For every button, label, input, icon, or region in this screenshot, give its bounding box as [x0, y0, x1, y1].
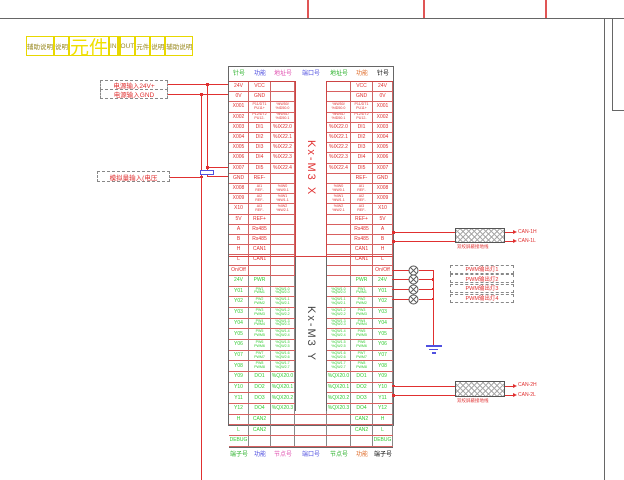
lamp-icon — [408, 294, 419, 305]
pin-address-right: %IX22.0 — [327, 123, 351, 132]
pin-function-right: PW3 PWM3 — [351, 308, 373, 318]
pwm-output-labels: PWM输出灯1PWM输出灯2PWM输出灯3PWM输出灯4 — [450, 265, 514, 304]
pin-function-left: PW5 PWM5 — [249, 329, 271, 339]
pin-function-right: DO3 — [351, 393, 373, 403]
pin-number-left: X004 — [229, 133, 249, 142]
junction-dot — [206, 83, 209, 86]
pin-number-left: X005 — [229, 143, 249, 152]
pin-number-right: X002 — [373, 113, 393, 122]
header-cell: 功能 — [351, 67, 373, 81]
pin-number-left: X10 — [229, 204, 249, 213]
pin-address-right — [327, 415, 351, 425]
label-pwm-output: PWM输出灯4 — [450, 294, 514, 303]
pin-function-left: P12/DT2 PU12- — [249, 113, 271, 122]
pin-function-left: CAN2 — [249, 415, 271, 425]
pin-address-left: %IW0 %IW0.1 — [271, 184, 295, 193]
pin-address-left: %IX22.3 — [271, 153, 295, 162]
pin-address-right: %QX20.2 — [327, 393, 351, 403]
module-body-x: Kx-M3 X — [295, 81, 327, 256]
pin-number-left: B — [229, 235, 249, 244]
junction-dot — [392, 231, 395, 234]
footer-cell: 节点号 — [271, 448, 295, 462]
pin-function-right — [351, 266, 373, 275]
legend-cell: OUT — [120, 36, 136, 56]
pin-function-left: PW8 PWM8 — [249, 361, 271, 371]
pin-address-right — [327, 425, 351, 435]
pin-function-right: REF- — [351, 174, 373, 183]
pin-function-right: GND — [351, 92, 373, 101]
pin-address-left: %IW1 %IW1.1 — [271, 194, 295, 203]
pin-function-right: Rs485 — [351, 235, 373, 244]
pin-number-left: 24V — [229, 276, 249, 286]
pin-function-left: AI1 REF- — [249, 184, 271, 193]
wire-pwm1-out — [419, 270, 433, 271]
wire-pwm2 — [392, 279, 409, 280]
pin-number-left: Y07 — [229, 351, 249, 361]
y-pin-row: H CAN2 CAN2 H — [229, 415, 393, 426]
label-can2-l: CAN-2L — [518, 393, 536, 398]
wire-can2-h — [392, 386, 455, 387]
connector-bottom-header: 端子号功能节点号端口号节点号功能端子号 — [229, 447, 393, 462]
pin-number-left: L — [229, 425, 249, 435]
pin-function-left: Rs485 — [249, 235, 271, 244]
pin-address-right — [327, 225, 351, 234]
pin-address-right: %IW2 %IW2.1 — [327, 204, 351, 213]
ground-icon — [426, 345, 442, 347]
legend-cell: IN — [109, 36, 118, 56]
pin-address-left: %IX22.0 — [271, 123, 295, 132]
module-y-name: Kx-M3 Y — [305, 306, 317, 362]
pin-function-right: DI2 — [351, 133, 373, 142]
pin-function-left: PW7 PWM7 — [249, 351, 271, 361]
label-power-gnd: 电源输入GND — [100, 89, 168, 99]
pin-number-right: X007 — [373, 164, 393, 173]
pin-number-left: Y10 — [229, 383, 249, 393]
ground-icon — [432, 352, 436, 354]
pin-number-right: 5V — [373, 215, 393, 224]
pin-number-right: On/Off — [373, 266, 393, 275]
legend-cell: 说明 — [54, 36, 69, 56]
pin-address-right — [327, 235, 351, 244]
wire-can1-l — [392, 241, 455, 242]
pin-number-left: X003 — [229, 123, 249, 132]
pin-address-right: %QW1.6 %QW2.6 — [327, 351, 351, 361]
header-cell: 地址号 — [271, 67, 295, 81]
pin-number-right: Y09 — [373, 372, 393, 382]
pin-address-right — [327, 436, 351, 446]
pin-address-left: %QW1.4 %QW2.4 — [271, 329, 295, 339]
pin-number-right: Y08 — [373, 361, 393, 371]
pin-number-right: X008 — [373, 184, 393, 193]
pin-address-left — [271, 436, 295, 446]
pin-number-right: 24V — [373, 82, 393, 91]
footer-cell: 功能 — [351, 448, 373, 462]
pin-function-right: DI3 — [351, 143, 373, 152]
pin-number-left: A — [229, 225, 249, 234]
pin-address-right — [327, 215, 351, 224]
pin-number-left: X008 — [229, 184, 249, 193]
pin-function-right: DO1 — [351, 372, 373, 382]
pin-number-right: Y02 — [373, 297, 393, 307]
sheet-tick — [307, 0, 309, 18]
pin-address-right — [327, 276, 351, 286]
sheet-frame-line — [612, 110, 624, 111]
pin-function-right: AI3 REF- — [351, 204, 373, 213]
pin-number-right: H — [373, 415, 393, 425]
pin-function-right: AI1 REF- — [351, 184, 373, 193]
sheet-top-border — [0, 18, 624, 19]
pin-address-left: %IX22.4 — [271, 164, 295, 173]
pin-number-left: X002 — [229, 113, 249, 122]
arrowhead-icon — [513, 393, 517, 397]
port-cell — [295, 425, 327, 435]
pin-function-left: GND — [249, 92, 271, 101]
pin-number-right: A — [373, 225, 393, 234]
pin-address-right: %QW1.2 %QW2.2 — [327, 308, 351, 318]
pin-function-right: REF+ — [351, 215, 373, 224]
pin-function-left: Rs485 — [249, 225, 271, 234]
pin-number-right: 0V — [373, 92, 393, 101]
pin-number-left: X009 — [229, 194, 249, 203]
pin-function-left: PW1 PWM1 — [249, 287, 271, 297]
pin-number-right: DEBUG — [373, 436, 393, 446]
pin-address-right — [327, 82, 351, 91]
pin-number-left: Y05 — [229, 329, 249, 339]
pin-number-right: X001 — [373, 102, 393, 111]
pin-address-right: %QW1.0 %QW2.0 — [327, 287, 351, 297]
pin-number-left: 24V — [229, 82, 249, 91]
shielded-cable-symbol-can2 — [455, 381, 505, 397]
pin-number-left: 5V — [229, 215, 249, 224]
pin-number-left: Y02 — [229, 297, 249, 307]
pin-number-right: GND — [373, 174, 393, 183]
pin-function-right: CAN2 — [351, 415, 373, 425]
pin-function-left — [249, 266, 271, 275]
pin-address-left — [271, 425, 295, 435]
pin-function-left: REF- — [249, 174, 271, 183]
pin-number-left: Y04 — [229, 319, 249, 329]
pin-number-right: X003 — [373, 123, 393, 132]
pin-address-left: %IX22.2 — [271, 143, 295, 152]
pin-address-right: %QX20.0 — [327, 372, 351, 382]
legend-strip: 辅助说明说明元件INOUT元件说明辅助说明 — [26, 36, 193, 58]
pin-function-right: CAN1 — [351, 245, 373, 254]
label-pwm-output: PWM输出灯3 — [450, 284, 514, 293]
pin-address-right — [327, 92, 351, 101]
pin-address-right: %IW0 %IW0.1 — [327, 184, 351, 193]
pin-address-left — [271, 415, 295, 425]
port-cell — [295, 436, 327, 446]
pin-number-right: Y01 — [373, 287, 393, 297]
label-can2-h: CAN-2H — [518, 383, 537, 388]
io-connector-table: 针号功能地址号端口号地址号功能针号 24V VCC VCC 24V 0V GND — [228, 66, 394, 426]
pin-number-left: Y09 — [229, 372, 249, 382]
pin-address-right: %QX20.1 — [327, 383, 351, 393]
pin-function-right: PW6 PWM6 — [351, 340, 373, 350]
pin-number-left: On/Off — [229, 266, 249, 275]
header-cell: 针号 — [373, 67, 393, 81]
pin-function-right: PW4 PWM4 — [351, 319, 373, 329]
pin-address-right: %QW1.1 %QW2.1 — [327, 297, 351, 307]
wire-pwm4 — [392, 299, 409, 300]
pin-address-left: %QW1.3 %QW2.3 — [271, 319, 295, 329]
label-pwm-output: PWM输出灯1 — [450, 265, 514, 274]
pin-address-right: %QX20.3 — [327, 404, 351, 414]
pin-address-left: %QW1.6 %QW2.6 — [271, 351, 295, 361]
junction-dot — [206, 166, 209, 169]
pin-address-right: %IX22.1 — [327, 133, 351, 142]
wire-pwm3 — [392, 289, 409, 290]
arrowhead-icon — [513, 230, 517, 234]
pin-address-left — [271, 92, 295, 101]
pin-function-right: PW1 PWM1 — [351, 287, 373, 297]
pin-number-right: X004 — [373, 133, 393, 142]
pin-address-left — [271, 82, 295, 91]
pin-number-left: Y11 — [229, 393, 249, 403]
pin-number-left: X006 — [229, 153, 249, 162]
pin-address-left: %QW1.5 %QW2.5 — [271, 340, 295, 350]
pin-number-right: Y11 — [373, 393, 393, 403]
pin-function-right: PW2 PWM2 — [351, 297, 373, 307]
pin-function-left: DI3 — [249, 143, 271, 152]
junction-dot — [432, 298, 435, 301]
wire-can1-h — [392, 232, 455, 233]
pin-function-left: P11/DT1 PU11+ — [249, 102, 271, 111]
pin-number-left: H — [229, 415, 249, 425]
pin-number-left: Y08 — [229, 361, 249, 371]
pin-function-left: DI4 — [249, 153, 271, 162]
pin-address-right: %IW51/ %ID50.1 — [327, 113, 351, 122]
block-divider-line — [229, 256, 393, 257]
pin-function-right: AI2 REF- — [351, 194, 373, 203]
pin-number-right: Y10 — [373, 383, 393, 393]
junction-dot — [392, 394, 395, 397]
pin-function-left — [249, 436, 271, 446]
junction-dot — [200, 176, 203, 179]
pin-address-left: %QX20.1 — [271, 383, 295, 393]
wire-ai1 — [207, 176, 228, 177]
footer-cell: 端子号 — [229, 448, 249, 462]
module-x-name: Kx-M3 X — [305, 140, 317, 196]
pin-function-left: PW4 PWM4 — [249, 319, 271, 329]
label-can1-l: CAN-1L — [518, 239, 536, 244]
pin-number-left: Y01 — [229, 287, 249, 297]
pin-function-right: DO2 — [351, 383, 373, 393]
pin-number-right: H — [373, 245, 393, 254]
legend-cell: 辅助说明 — [165, 36, 193, 56]
pin-address-right — [327, 266, 351, 275]
pin-function-left: DI5 — [249, 164, 271, 173]
pin-function-left: CAN2 — [249, 425, 271, 435]
pin-function-right: PW5 PWM5 — [351, 329, 373, 339]
port-cell — [295, 415, 327, 425]
pin-number-right: L — [373, 425, 393, 435]
pin-address-left: %QW1.1 %QW2.1 — [271, 297, 295, 307]
junction-dot — [432, 288, 435, 291]
pin-number-left: Y12 — [229, 404, 249, 414]
pin-address-left: %IW50/ %ID50.0 — [271, 102, 295, 111]
pin-address-right: %IX22.2 — [327, 143, 351, 152]
wire-gnd-vertical — [201, 94, 202, 480]
pin-address-right: %IW1 %IW1.1 — [327, 194, 351, 203]
pin-address-right: %IX22.4 — [327, 164, 351, 173]
sheet-tick — [423, 0, 425, 18]
pin-number-right: X10 — [373, 204, 393, 213]
pin-address-right — [327, 174, 351, 183]
pin-number-left: DEBUG — [229, 436, 249, 446]
pin-number-left: Y03 — [229, 308, 249, 318]
schematic-sheet: 辅助说明说明元件INOUT元件说明辅助说明 针号功能地址号端口号地址号功能针号 … — [0, 0, 624, 480]
pin-function-left: REF+ — [249, 215, 271, 224]
header-cell: 功能 — [249, 67, 271, 81]
pin-number-right: Y04 — [373, 319, 393, 329]
pin-function-left: DI1 — [249, 123, 271, 132]
junction-dot — [392, 240, 395, 243]
wire-ref-minus — [207, 167, 228, 168]
module-body-y: Kx-M3 Y — [295, 256, 327, 411]
pin-address-right: %QW1.4 %QW2.4 — [327, 329, 351, 339]
pin-number-left: GND — [229, 174, 249, 183]
pin-function-left: CAN1 — [249, 245, 271, 254]
pin-function-left: DO3 — [249, 393, 271, 403]
junction-dot — [392, 385, 395, 388]
footer-cell: 端子号 — [373, 448, 393, 462]
pin-function-right: DI4 — [351, 153, 373, 162]
pin-address-right: %IX22.3 — [327, 153, 351, 162]
pin-number-right: X009 — [373, 194, 393, 203]
footer-cell: 端口号 — [295, 448, 327, 462]
pin-number-left: X007 — [229, 164, 249, 173]
pin-address-left: %QW1.0 %QW2.0 — [271, 287, 295, 297]
pin-number-right: Y05 — [373, 329, 393, 339]
pin-function-left: DO1 — [249, 372, 271, 382]
header-cell: 端口号 — [295, 67, 327, 81]
pin-function-left: VCC — [249, 82, 271, 91]
legend-cell: 说明 — [150, 36, 165, 56]
pin-address-right: %QW1.7 %QW2.7 — [327, 361, 351, 371]
pin-address-left — [271, 225, 295, 234]
wire-lamp-common — [433, 270, 434, 345]
sheet-frame-line — [612, 18, 613, 110]
pin-function-right: CAN2 — [351, 425, 373, 435]
pin-address-left: %IX22.1 — [271, 133, 295, 142]
shielded-cable-symbol-can1 — [455, 228, 505, 243]
pin-address-left: %IW51/ %ID50.1 — [271, 113, 295, 122]
pin-address-left — [271, 276, 295, 286]
pin-address-right: %QW1.3 %QW2.3 — [327, 319, 351, 329]
label-pwm-output: PWM输出灯2 — [450, 274, 514, 283]
header-cell: 针号 — [229, 67, 249, 81]
pin-function-left: DI2 — [249, 133, 271, 142]
header-cell: 地址号 — [327, 67, 351, 81]
pin-function-left: AI3 REF- — [249, 204, 271, 213]
pin-function-right: DO4 — [351, 404, 373, 414]
pin-address-left: %IW2 %IW2.1 — [271, 204, 295, 213]
wire-pwm1 — [392, 270, 409, 271]
pin-number-left: Y06 — [229, 340, 249, 350]
pin-function-right: PW8 PWM8 — [351, 361, 373, 371]
pin-address-left — [271, 235, 295, 244]
pin-address-right: %IW50/ %ID50.0 — [327, 102, 351, 111]
pin-number-right: X006 — [373, 153, 393, 162]
pin-address-left: %QX20.0 — [271, 372, 295, 382]
pin-number-left: 0V — [229, 92, 249, 101]
junction-dot — [200, 93, 203, 96]
label-can1-h: CAN-1H — [518, 230, 537, 235]
wire-gnd — [168, 94, 228, 95]
pin-address-left: %QX20.3 — [271, 404, 295, 414]
pin-function-right: VCC — [351, 82, 373, 91]
pin-address-left — [271, 266, 295, 275]
y-pin-row: L CAN2 CAN2 L — [229, 425, 393, 436]
caption-can1-cable: 双绞屏蔽接地线 — [457, 245, 489, 250]
pin-number-right: Y06 — [373, 340, 393, 350]
pin-number-right: B — [373, 235, 393, 244]
pin-function-left: DO4 — [249, 404, 271, 414]
pin-function-right: PWR — [351, 276, 373, 286]
pin-address-left: %QW1.7 %QW2.7 — [271, 361, 295, 371]
sheet-tick — [545, 0, 547, 18]
arrowhead-icon — [513, 384, 517, 388]
y-pin-row: DEBUG DEBUG — [229, 436, 393, 447]
pin-number-left: H — [229, 245, 249, 254]
pin-function-left: DO2 — [249, 383, 271, 393]
pin-function-right: P11/DT1 PU11+ — [351, 102, 373, 111]
footer-cell: 节点号 — [327, 448, 351, 462]
pin-function-right: DI5 — [351, 164, 373, 173]
resistor-symbol — [200, 170, 214, 175]
pin-function-right: Rs485 — [351, 225, 373, 234]
pin-function-right — [351, 436, 373, 446]
pin-number-right: Y03 — [373, 308, 393, 318]
junction-dot — [432, 278, 435, 281]
ground-icon — [429, 349, 438, 351]
pin-function-left: AI2 REF- — [249, 194, 271, 203]
pin-number-right: Y07 — [373, 351, 393, 361]
wire-can2-l — [392, 395, 455, 396]
pin-address-right — [327, 245, 351, 254]
pin-function-right: P12/DT2 PU12- — [351, 113, 373, 122]
arrowhead-icon — [513, 239, 517, 243]
pin-address-left — [271, 174, 295, 183]
pin-address-left — [271, 215, 295, 224]
pin-number-right: X005 — [373, 143, 393, 152]
pin-address-left: %QW1.2 %QW2.2 — [271, 308, 295, 318]
pin-number-right: Y12 — [373, 404, 393, 414]
pin-number-left: X001 — [229, 102, 249, 111]
pin-function-left: PWR — [249, 276, 271, 286]
wire-analog-label — [170, 177, 201, 178]
legend-cell: 元件 — [69, 36, 109, 56]
caption-can2-cable: 双绞屏蔽接地线 — [457, 399, 489, 404]
pin-function-left: PW2 PWM2 — [249, 297, 271, 307]
wire-24v — [168, 84, 228, 85]
label-analog-input: 模拟量输入(电压 — [97, 171, 170, 182]
footer-cell: 功能 — [249, 448, 271, 462]
label-power-24v: 电源输入24V+ — [100, 80, 168, 90]
pin-address-left: %QX20.2 — [271, 393, 295, 403]
pin-address-right: %QW1.5 %QW2.5 — [327, 340, 351, 350]
sheet-right-border — [604, 18, 605, 480]
connector-top-header: 针号功能地址号端口号地址号功能针号 — [229, 67, 393, 82]
legend-cell: 元件 — [135, 36, 150, 56]
pin-function-left: PW3 PWM3 — [249, 308, 271, 318]
pin-function-right: DI1 — [351, 123, 373, 132]
pin-function-right: PW7 PWM7 — [351, 351, 373, 361]
wire-branch-vertical — [207, 84, 208, 177]
pin-number-right: 24V — [373, 276, 393, 286]
pin-function-left: PW6 PWM6 — [249, 340, 271, 350]
